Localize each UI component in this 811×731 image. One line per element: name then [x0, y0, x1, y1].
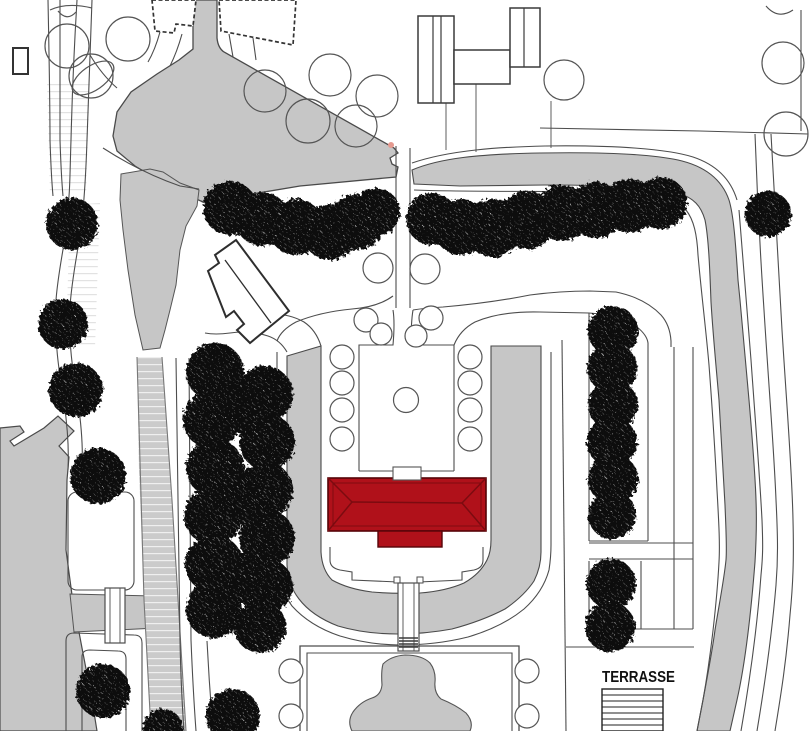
svg-text:TERRASSE: TERRASSE — [602, 669, 675, 686]
